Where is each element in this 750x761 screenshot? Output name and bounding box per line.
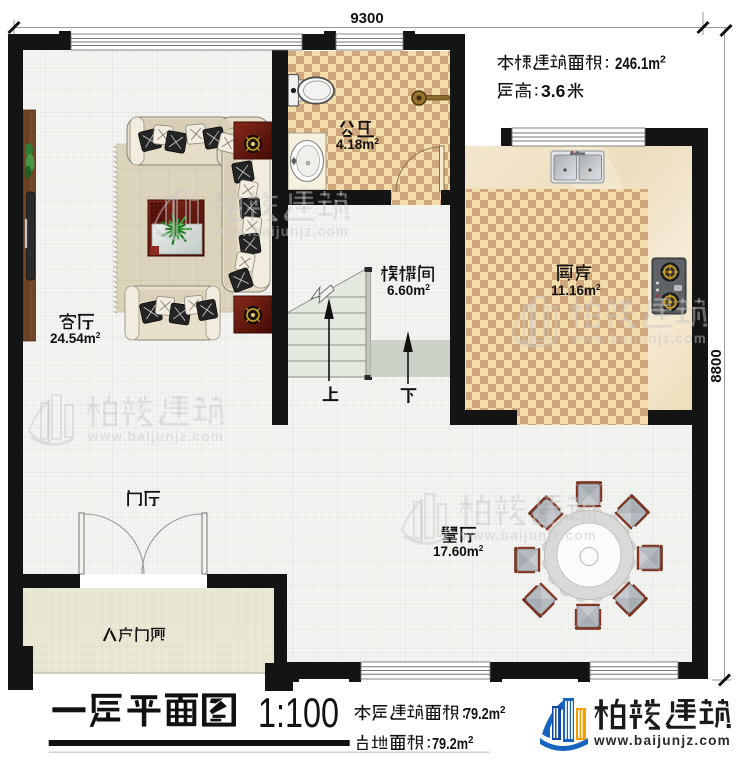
svg-text:3.6: 3.6: [541, 81, 566, 101]
svg-text:www.baijunjz.com: www.baijunjz.com: [212, 223, 349, 239]
svg-text:9300: 9300: [350, 10, 383, 27]
svg-text:246.1m2: 246.1m2: [615, 54, 666, 74]
svg-text:www.baijunjz.com: www.baijunjz.com: [460, 527, 597, 543]
svg-text:www.baijunjz.com: www.baijunjz.com: [593, 733, 731, 748]
svg-text:17.60m2: 17.60m2: [433, 543, 484, 559]
svg-text:79.2m2: 79.2m2: [432, 735, 474, 753]
svg-text:www.baijunjz.com: www.baijunjz.com: [87, 428, 224, 444]
svg-text:11.16m2: 11.16m2: [551, 282, 601, 298]
svg-text:79.2m2: 79.2m2: [464, 705, 506, 723]
svg-text:8800: 8800: [708, 349, 725, 382]
svg-text:4.18m2: 4.18m2: [336, 136, 379, 152]
svg-text:24.54m2: 24.54m2: [50, 330, 101, 346]
svg-text:www.baijunjz.com: www.baijunjz.com: [570, 330, 707, 346]
svg-text:6.60m2: 6.60m2: [387, 282, 430, 298]
svg-text:1:100: 1:100: [258, 689, 339, 736]
